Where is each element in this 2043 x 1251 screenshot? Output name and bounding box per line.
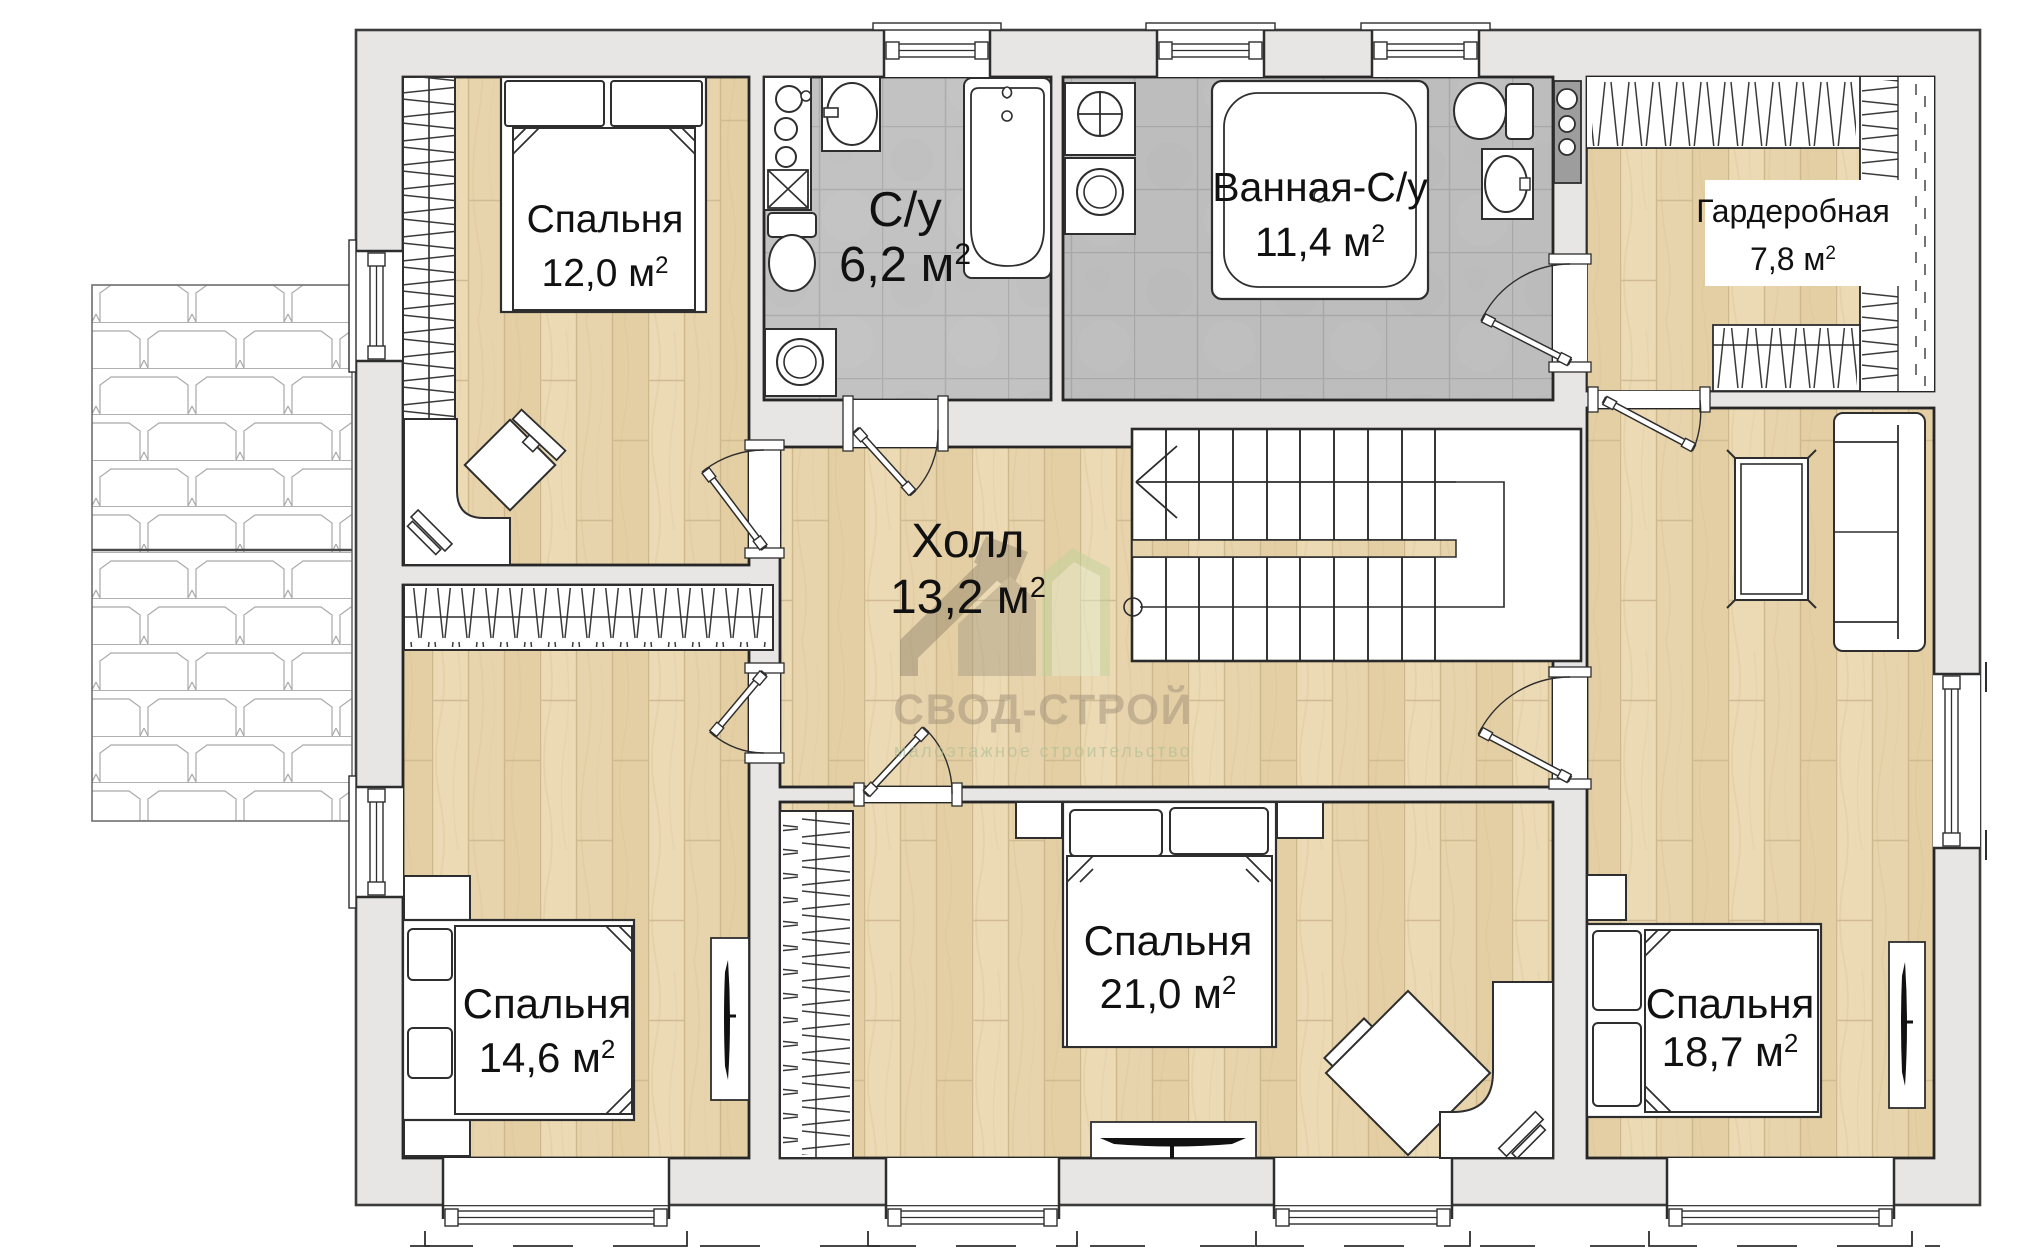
svg-text:18,7 м2: 18,7 м2 [1662,1028,1799,1075]
svg-text:7,8 м2: 7,8 м2 [1750,241,1836,277]
svg-text:малоэтажное строительство: малоэтажное строительство [894,741,1192,761]
svg-text:Спальня: Спальня [527,198,684,241]
svg-text:СВОД-СТРОЙ: СВОД-СТРОЙ [893,685,1192,734]
svg-text:Спальня: Спальня [1646,980,1815,1027]
svg-text:11,4 м2: 11,4 м2 [1255,219,1385,265]
svg-text:Ванная-С/у: Ванная-С/у [1212,164,1428,210]
svg-text:6,2 м2: 6,2 м2 [839,238,971,292]
svg-text:21,0 м2: 21,0 м2 [1100,970,1237,1017]
svg-text:Холл: Холл [911,515,1024,568]
svg-text:14,6 м2: 14,6 м2 [479,1034,616,1081]
svg-text:С/у: С/у [868,183,942,237]
svg-text:Гардеробная: Гардеробная [1696,193,1890,229]
svg-text:Спальня: Спальня [463,980,632,1027]
svg-text:Спальня: Спальня [1084,917,1253,964]
svg-text:12,0 м2: 12,0 м2 [542,252,669,295]
svg-text:13,2 м2: 13,2 м2 [890,571,1046,624]
